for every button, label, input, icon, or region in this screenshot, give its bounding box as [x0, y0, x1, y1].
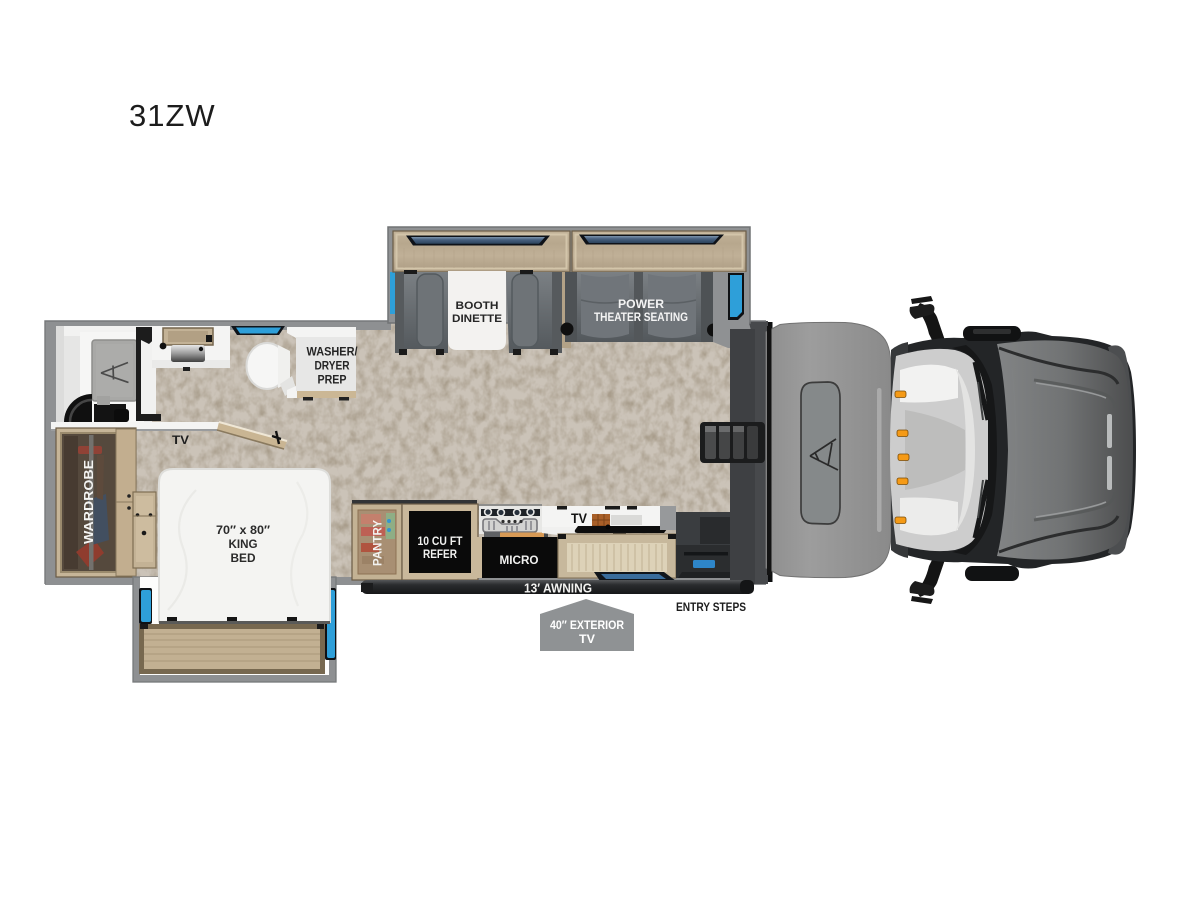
svg-text:TV: TV — [172, 433, 189, 447]
svg-text:70″ x 80″: 70″ x 80″ — [216, 525, 271, 537]
svg-text:DRYER: DRYER — [315, 359, 350, 373]
svg-text:PREP: PREP — [318, 373, 347, 387]
svg-text:ENTRY STEPS: ENTRY STEPS — [676, 600, 746, 614]
svg-text:TV: TV — [571, 510, 588, 526]
svg-text:TV: TV — [579, 634, 595, 646]
svg-text:MICRO: MICRO — [500, 553, 539, 567]
svg-text:WARDROBE: WARDROBE — [82, 460, 96, 544]
svg-text:WASHER/: WASHER/ — [307, 345, 359, 359]
svg-text:13′ AWNING: 13′ AWNING — [524, 582, 592, 596]
svg-text:REFER: REFER — [423, 549, 458, 561]
svg-text:DINETTE: DINETTE — [452, 313, 502, 325]
svg-text:10 CU FT: 10 CU FT — [418, 536, 463, 548]
svg-text:BED: BED — [231, 553, 256, 565]
svg-text:POWER: POWER — [618, 299, 665, 311]
svg-text:BOOTH: BOOTH — [456, 300, 499, 312]
svg-text:31ZW: 31ZW — [129, 98, 216, 133]
svg-text:KING: KING — [229, 539, 258, 551]
svg-text:40″ EXTERIOR: 40″ EXTERIOR — [550, 620, 625, 632]
svg-text:PANTRY: PANTRY — [373, 520, 385, 566]
svg-text:THEATER SEATING: THEATER SEATING — [594, 312, 688, 324]
